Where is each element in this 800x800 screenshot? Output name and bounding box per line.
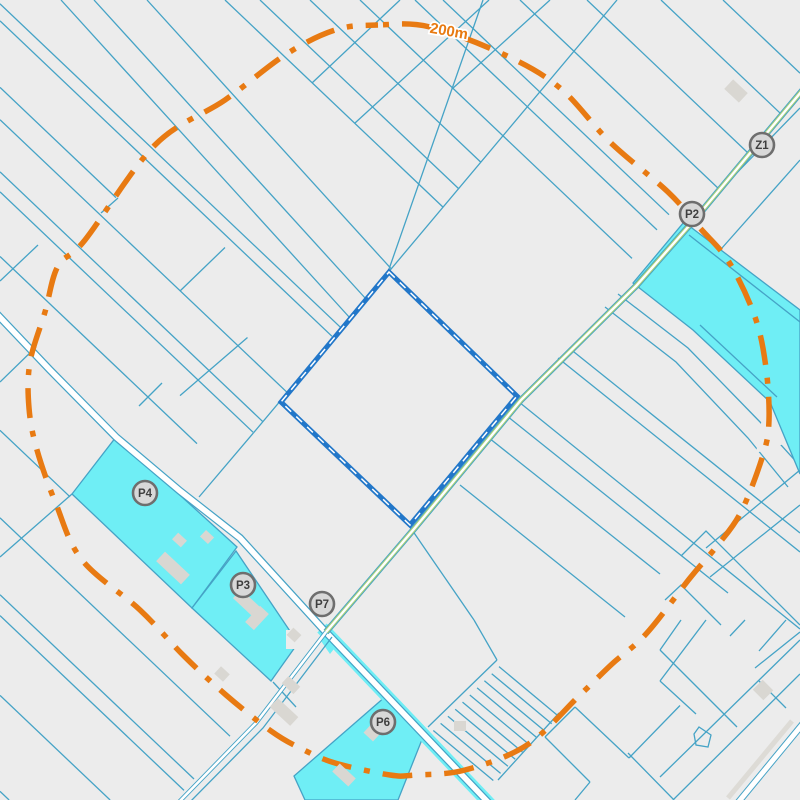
svg-text:P3: P3 <box>236 580 250 592</box>
svg-text:Z1: Z1 <box>755 140 769 152</box>
svg-text:P4: P4 <box>138 488 153 500</box>
svg-text:P6: P6 <box>376 717 390 729</box>
svg-text:P2: P2 <box>685 209 699 221</box>
svg-text:P7: P7 <box>315 599 329 611</box>
